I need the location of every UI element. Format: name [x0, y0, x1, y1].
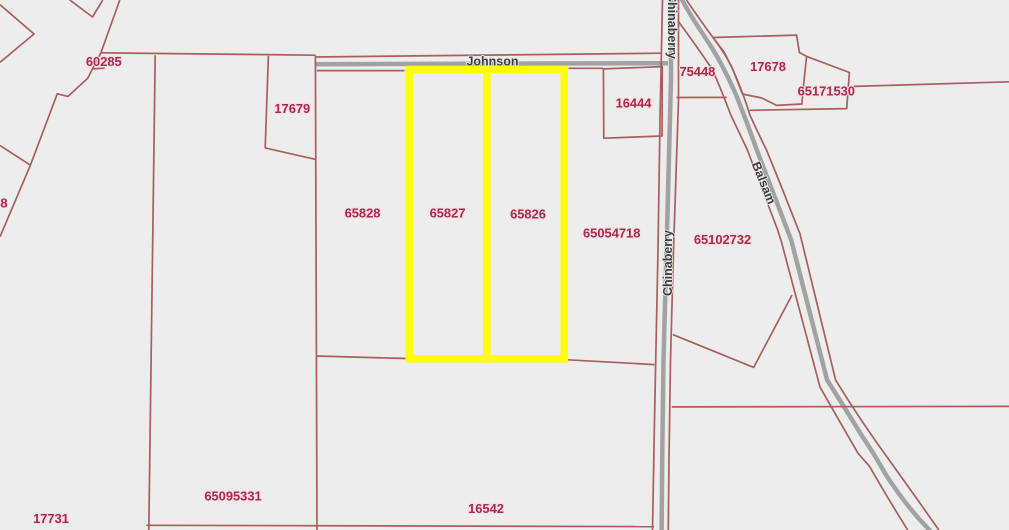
svg-text:17678: 17678: [750, 59, 786, 74]
svg-text:16444: 16444: [616, 95, 653, 110]
svg-text:75448: 75448: [679, 64, 715, 79]
svg-text:65171530: 65171530: [798, 83, 855, 98]
svg-text:17731: 17731: [33, 511, 69, 526]
svg-text:65827: 65827: [430, 206, 466, 221]
svg-text:8: 8: [0, 196, 7, 211]
svg-text:65095331: 65095331: [204, 488, 261, 503]
svg-text:65102732: 65102732: [694, 232, 751, 247]
svg-text:Chinaberry: Chinaberry: [661, 230, 675, 296]
svg-text:16542: 16542: [468, 501, 504, 516]
svg-text:65828: 65828: [345, 206, 381, 221]
svg-text:17679: 17679: [274, 101, 310, 116]
svg-text:Johnson: Johnson: [466, 55, 518, 69]
svg-text:65054718: 65054718: [583, 226, 640, 241]
svg-text:Chinaberry: Chinaberry: [665, 0, 679, 59]
svg-text:65826: 65826: [510, 206, 546, 221]
svg-text:60285: 60285: [86, 54, 122, 69]
